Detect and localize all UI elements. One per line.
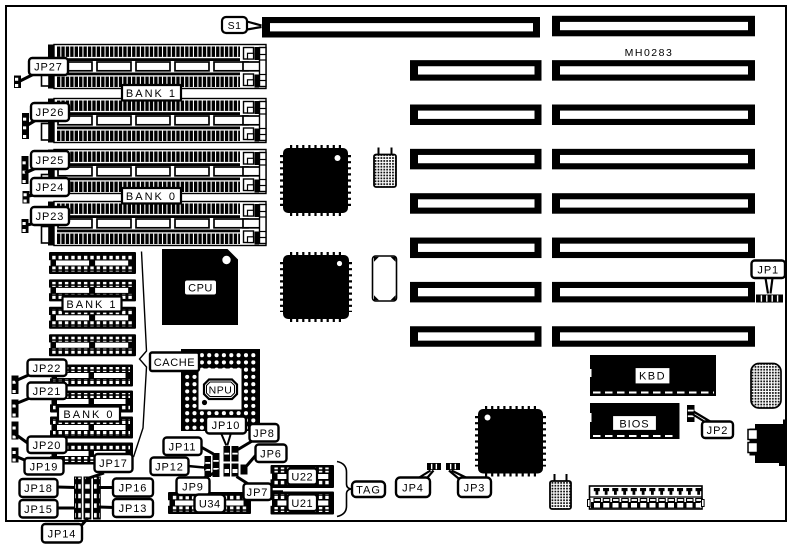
svg-text:BANK 0: BANK 0 bbox=[63, 409, 114, 421]
svg-text:U22: U22 bbox=[291, 472, 313, 484]
svg-text:JP3: JP3 bbox=[464, 482, 486, 494]
svg-text:JP14: JP14 bbox=[48, 528, 77, 540]
svg-text:U21: U21 bbox=[291, 498, 313, 510]
svg-text:KBD: KBD bbox=[639, 371, 666, 383]
svg-text:JP2: JP2 bbox=[707, 425, 729, 437]
svg-text:JP10: JP10 bbox=[212, 420, 241, 432]
svg-text:MH0283: MH0283 bbox=[625, 47, 674, 59]
svg-text:JP4: JP4 bbox=[402, 482, 424, 494]
svg-text:JP19: JP19 bbox=[30, 461, 59, 473]
svg-text:NPU: NPU bbox=[209, 385, 233, 397]
svg-text:JP8: JP8 bbox=[253, 428, 275, 440]
svg-text:S1: S1 bbox=[228, 20, 242, 32]
svg-text:JP12: JP12 bbox=[155, 461, 184, 473]
svg-text:CPU: CPU bbox=[188, 283, 213, 295]
svg-text:JP9: JP9 bbox=[182, 481, 204, 493]
svg-text:JP17: JP17 bbox=[99, 458, 128, 470]
svg-text:JP18: JP18 bbox=[24, 483, 53, 495]
svg-text:JP22: JP22 bbox=[33, 363, 62, 375]
svg-text:JP21: JP21 bbox=[33, 386, 62, 398]
svg-text:BIOS: BIOS bbox=[619, 419, 649, 431]
svg-text:JP24: JP24 bbox=[36, 182, 65, 194]
svg-text:TAG: TAG bbox=[356, 484, 381, 496]
svg-text:BANK 0: BANK 0 bbox=[126, 191, 177, 203]
svg-text:JP25: JP25 bbox=[36, 155, 65, 167]
svg-text:JP7: JP7 bbox=[247, 487, 269, 499]
svg-text:JP6: JP6 bbox=[260, 448, 282, 460]
svg-text:JP1: JP1 bbox=[757, 264, 779, 276]
svg-text:JP20: JP20 bbox=[33, 440, 62, 452]
svg-text:JP27: JP27 bbox=[34, 62, 63, 74]
svg-text:BANK 1: BANK 1 bbox=[66, 299, 117, 311]
svg-text:JP13: JP13 bbox=[119, 503, 148, 515]
svg-text:JP26: JP26 bbox=[36, 107, 65, 119]
svg-text:JP15: JP15 bbox=[24, 504, 53, 516]
svg-text:JP16: JP16 bbox=[119, 483, 148, 495]
svg-text:U34: U34 bbox=[199, 499, 221, 511]
svg-text:BANK 1: BANK 1 bbox=[126, 88, 177, 100]
svg-text:JP11: JP11 bbox=[169, 441, 197, 453]
svg-text:JP23: JP23 bbox=[36, 211, 65, 223]
svg-text:CACHE: CACHE bbox=[154, 357, 196, 369]
